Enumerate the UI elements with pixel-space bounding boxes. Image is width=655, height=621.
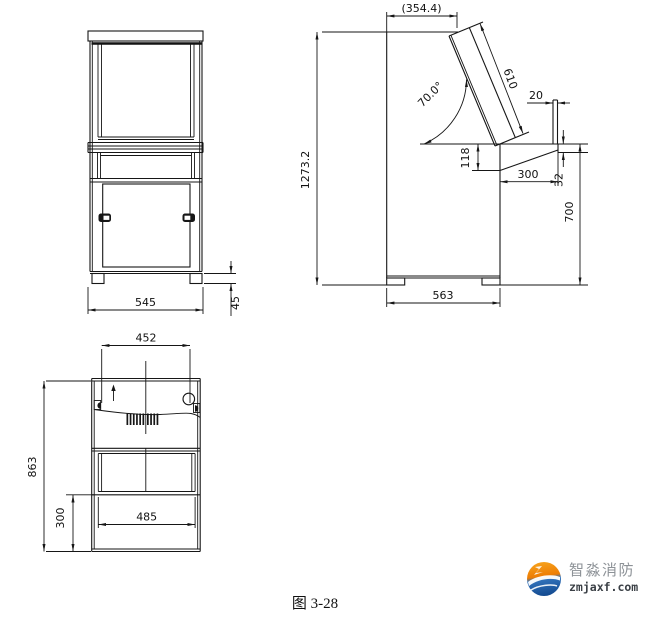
dim-desk-depth: 300 [500, 153, 558, 187]
dim-lower-height: 300 [54, 495, 94, 552]
zhimiao-logo-icon [525, 559, 563, 601]
front-foot-right [190, 274, 202, 284]
dim-label-700: 700 [563, 202, 576, 223]
dim-desk-height: 700 [500, 144, 588, 285]
front-door-panel [99, 184, 196, 267]
cable-hole [183, 393, 195, 405]
side-foot-front [387, 278, 405, 285]
dim-inner-width: 485 [98, 497, 195, 528]
front-top-cap [88, 31, 203, 41]
dim-label-452: 452 [136, 332, 157, 345]
vent-slots [127, 414, 159, 426]
front-drawer-section [90, 153, 202, 183]
front-window-frame [98, 45, 194, 140]
front-desk-band [88, 143, 203, 153]
rear-section-view: 452 485 300 863 [26, 332, 200, 552]
dim-front-foot-height: 45 [204, 261, 242, 316]
dim-desk-edge: 32 [553, 130, 566, 187]
dim-label-300-side: 300 [518, 168, 539, 181]
dim-top-depth: (354.4) [387, 2, 457, 32]
dim-overall-height: 1273.2 [299, 32, 387, 285]
dim-panel-length: 610 [480, 24, 523, 134]
dim-rear-lip: 20 [527, 89, 570, 103]
dim-label-545: 545 [135, 296, 156, 309]
dim-label-610: 610 [501, 67, 520, 91]
dim-label-20: 20 [529, 89, 543, 102]
up-arrow-mark [111, 385, 115, 402]
dim-front-width: 545 [88, 287, 203, 314]
dim-label-863: 863 [26, 457, 39, 478]
dim-label-118: 118 [459, 148, 472, 169]
technical-drawing: 545 45 610 [0, 0, 655, 621]
drawing-page: 545 45 610 [0, 0, 655, 621]
door-handle-left [99, 214, 112, 223]
dim-panel-angle: 70.0° [415, 79, 466, 144]
logo-domain: zmjaxf.com [569, 581, 638, 593]
inner-opening [92, 448, 201, 495]
door-handle-right [183, 214, 196, 223]
dim-label-1273: 1273.2 [299, 151, 312, 190]
dim-base-depth: 563 [387, 288, 500, 307]
dim-label-354: (354.4) [401, 2, 441, 15]
hinge-left [94, 401, 101, 410]
dim-label-485: 485 [136, 511, 157, 524]
dim-label-563: 563 [433, 289, 454, 302]
front-foot-left [92, 274, 104, 284]
hinge-right [194, 404, 200, 413]
dim-label-70deg: 70.0° [415, 79, 445, 109]
front-view: 545 45 [88, 31, 242, 316]
dim-label-32: 32 [553, 173, 566, 187]
logo-title: 智淼消防 [569, 563, 638, 579]
side-foot-rear [482, 278, 500, 285]
watermark-logo: 智淼消防 zmjaxf.com [525, 559, 638, 601]
figure-caption: 图 3-28 [250, 592, 380, 613]
dim-label-300-rear: 300 [54, 508, 67, 529]
side-view: 610 70.0° 20 118 [299, 2, 588, 307]
dim-desk-drop: 118 [459, 144, 478, 171]
dim-label-45: 45 [229, 296, 242, 310]
